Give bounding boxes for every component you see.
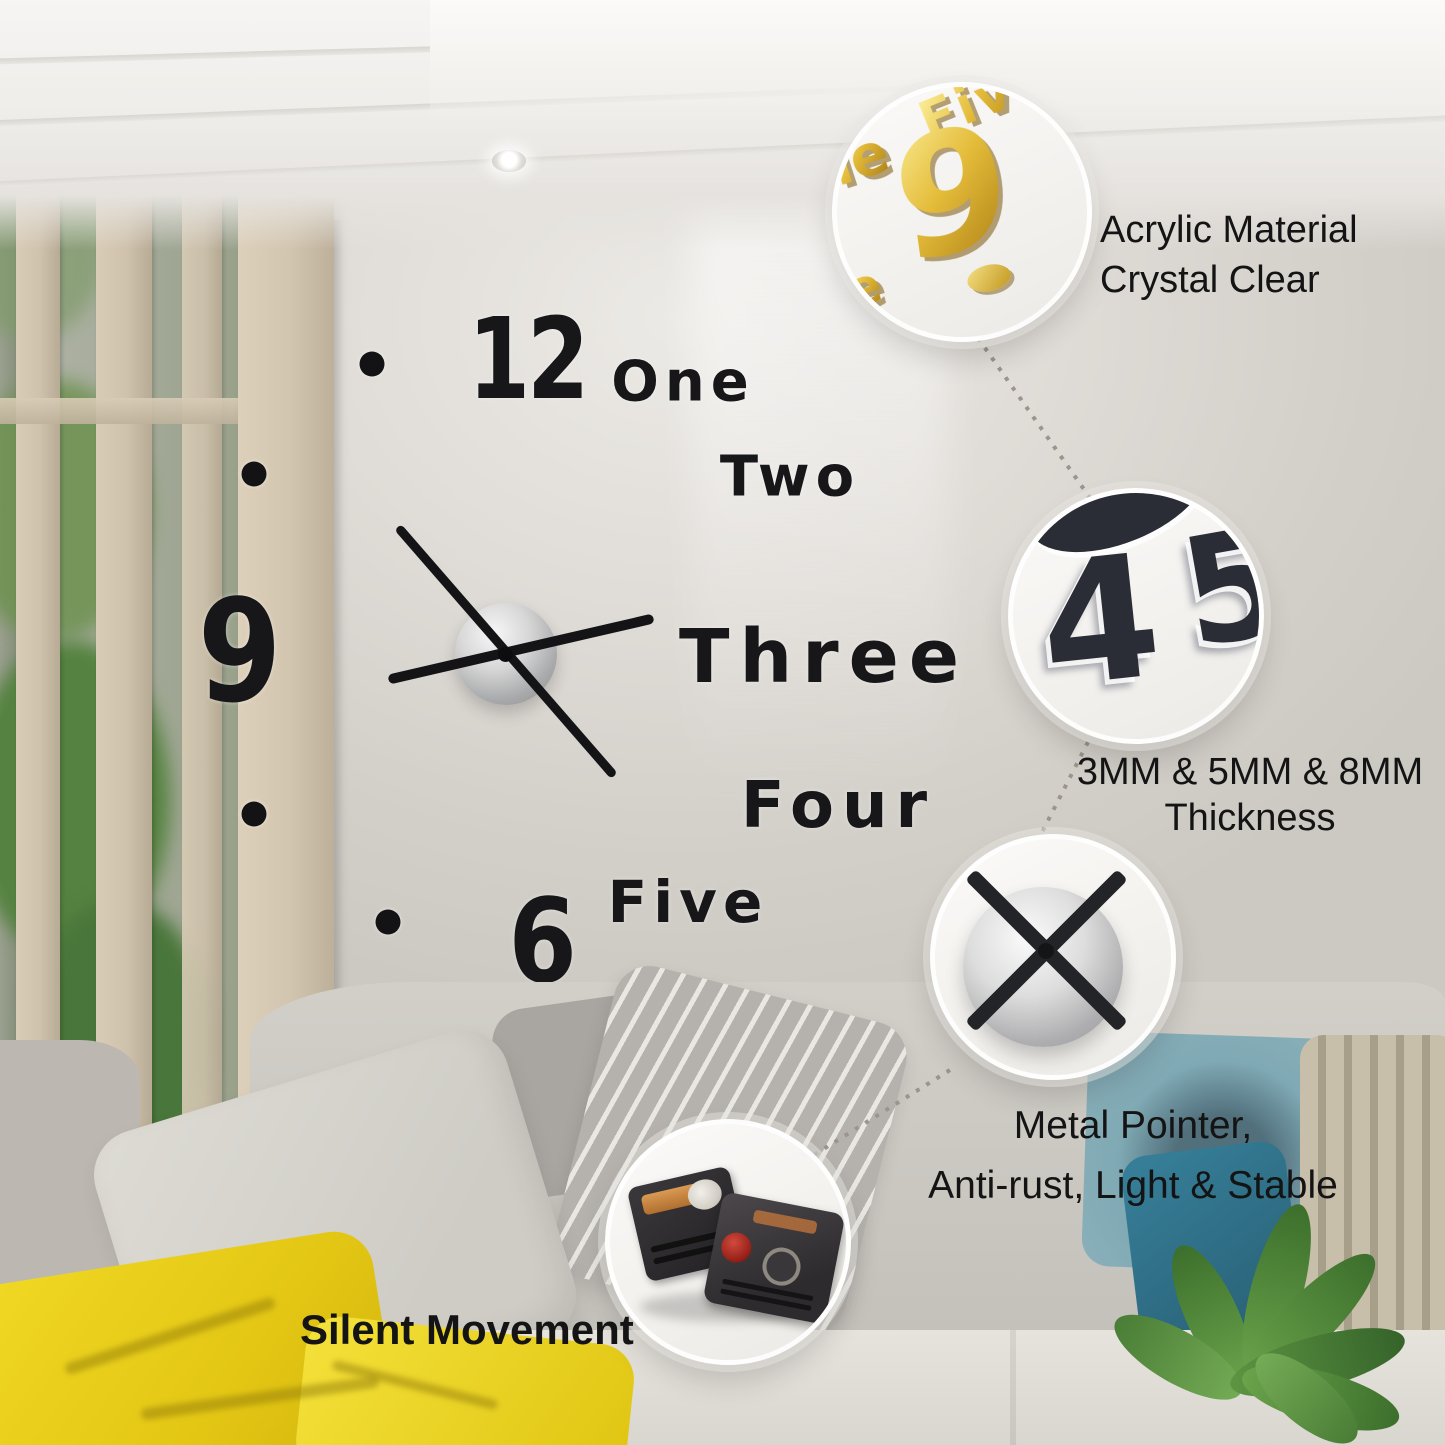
clock-word-four: Four [741,769,935,843]
clock-hour-dot [360,352,385,377]
label-silent-movement: Silent Movement [300,1302,634,1357]
clock-word-one: One [611,350,754,415]
label-line: Anti-rust, Light & Stable [898,1156,1368,1216]
label-metal-pointer: Metal Pointer, Anti-rust, Light & Stable [898,1096,1368,1217]
window-rail [0,398,250,424]
label-line: Acrylic Material [1100,205,1445,255]
inset-thickness: 5 4 [1008,488,1264,744]
clock-word-three: Three [679,614,969,700]
black-acrylic-numeral: 4 [1031,517,1169,726]
pointer-hub [1038,943,1054,959]
movement-red-knob [719,1230,754,1265]
label-thickness: 3MM & 5MM & 8MM Thickness [1052,750,1445,841]
clock-word-two: Two [720,445,860,510]
inset-acrylic-material: Five ie 9 e [832,82,1092,342]
clock-hour-dot [242,802,267,827]
clock-movement-mechanism [702,1191,845,1325]
clock-hour-dot [242,462,267,487]
sofa-seam [1010,1330,1016,1445]
wall-corner-shadow [334,220,344,1080]
movement-dial [759,1244,804,1289]
movement-coil [752,1209,817,1234]
label-line: Metal Pointer, [898,1096,1368,1156]
ceiling-spotlight-icon [492,150,526,172]
movement-slots [722,1279,813,1301]
clock-numeral-9: 9 [198,570,279,735]
clock-hour-dot [376,910,401,935]
potted-plant [1120,1245,1445,1445]
label-acrylic-material: Acrylic Material Crystal Clear [1100,205,1445,305]
movement-gear [685,1176,725,1213]
clock-hub [498,647,513,662]
clock-numeral-12: 12 [468,295,586,425]
inset-metal-pointer [930,834,1176,1080]
pointer-silver-disc [963,887,1123,1047]
label-line: Thickness [1052,796,1445,842]
label-line: 3MM & 5MM & 8MM [1052,750,1445,796]
inset-silent-movement [605,1119,851,1365]
clock-word-five: Five [608,868,769,936]
label-line: Crystal Clear [1100,255,1445,305]
living-room-scene: 12 9 6 One Two Three Four Five [0,0,1445,1445]
black-acrylic-numeral: 5 [1169,493,1264,682]
